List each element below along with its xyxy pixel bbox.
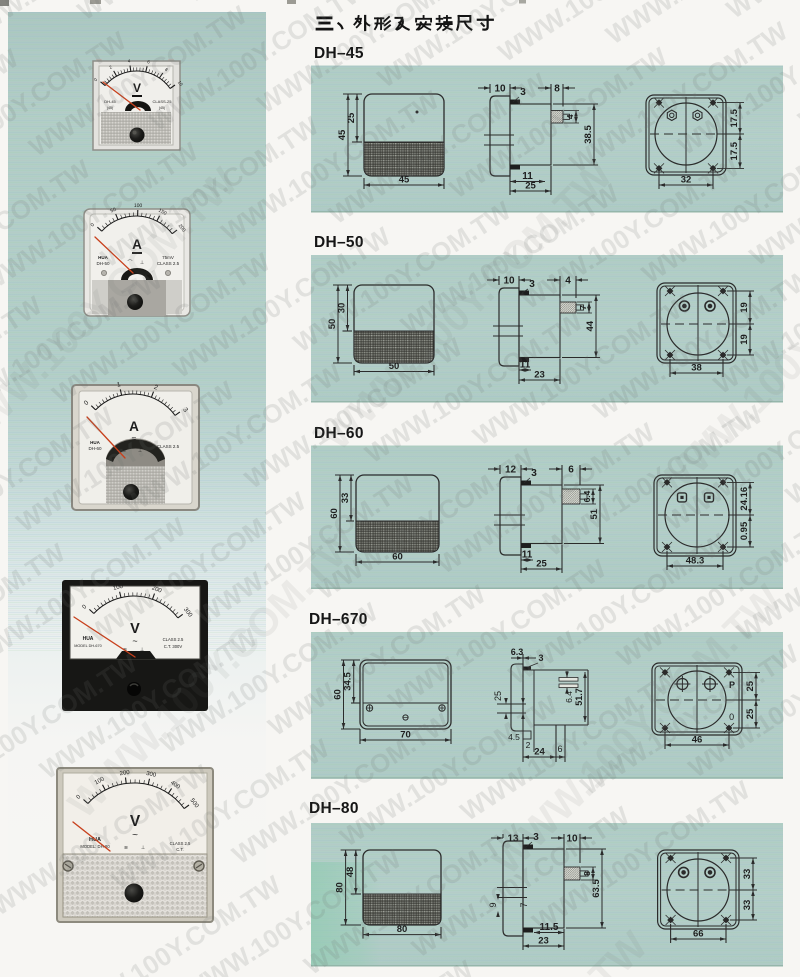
svg-text:7: 7 — [519, 902, 529, 907]
svg-text:≋: ≋ — [124, 845, 128, 851]
svg-text:DH-60: DH-60 — [88, 446, 102, 451]
svg-text:C.T. 300V: C.T. 300V — [164, 644, 183, 649]
svg-text:2: 2 — [526, 740, 531, 750]
svg-text:25: 25 — [493, 691, 503, 701]
svg-text:25: 25 — [525, 181, 536, 192]
svg-text:46: 46 — [692, 735, 703, 746]
svg-text:51.7: 51.7 — [574, 688, 584, 706]
svg-text:25: 25 — [346, 112, 357, 123]
svg-text:0: 0 — [729, 712, 734, 722]
svg-text:66: 66 — [693, 929, 704, 940]
svg-text:6.4: 6.4 — [564, 691, 574, 703]
svg-text:CLASS 2.5: CLASS 2.5 — [163, 637, 184, 642]
svg-text:~: ~ — [132, 636, 137, 646]
svg-text:7: 7 — [578, 305, 588, 310]
svg-text:33: 33 — [742, 900, 753, 911]
svg-text:11: 11 — [522, 550, 533, 561]
svg-text:25: 25 — [536, 559, 547, 570]
svg-text:6.4: 6.4 — [582, 490, 592, 502]
svg-text:8: 8 — [554, 84, 560, 95]
svg-text:0.95: 0.95 — [739, 521, 750, 540]
svg-text:33: 33 — [742, 869, 753, 880]
